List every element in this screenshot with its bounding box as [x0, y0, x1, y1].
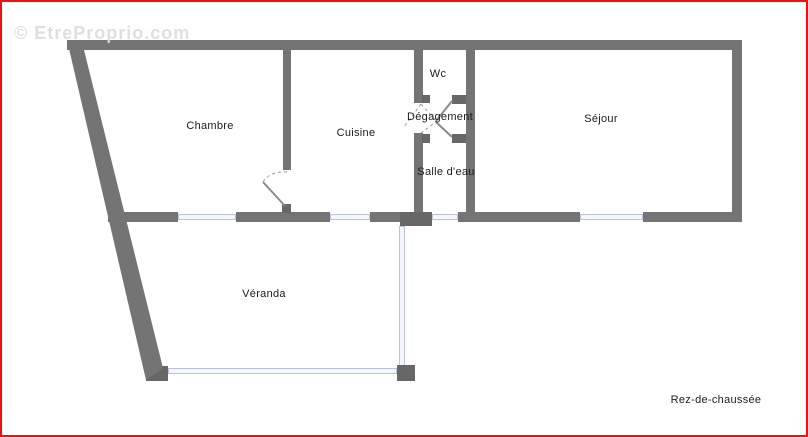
door-swing-chambre	[263, 172, 287, 182]
room-label-sejour: Séjour	[584, 113, 618, 125]
floorplan-canvas: © EtreProprio.com Chambre	[0, 0, 808, 437]
room-label-wc: Wc	[430, 68, 446, 80]
room-label-veranda: Véranda	[242, 288, 286, 300]
slanted-left-wall	[67, 40, 163, 380]
door-swing-salle-deau	[421, 122, 436, 133]
room-label-cuisine: Cuisine	[337, 127, 376, 139]
floor-level-label: Rez-de-chaussée	[671, 394, 762, 406]
room-label-chambre: Chambre	[186, 120, 233, 132]
room-label-salle-deau: Salle d'eau	[417, 166, 474, 178]
room-label-degagement: Dégagement	[407, 111, 473, 123]
door-leaf-chambre	[263, 182, 285, 206]
watermark-text: © EtreProprio.com	[14, 23, 190, 44]
walls-and-doors-overlay	[0, 0, 808, 437]
door-leaf-salle-deau	[436, 122, 452, 137]
